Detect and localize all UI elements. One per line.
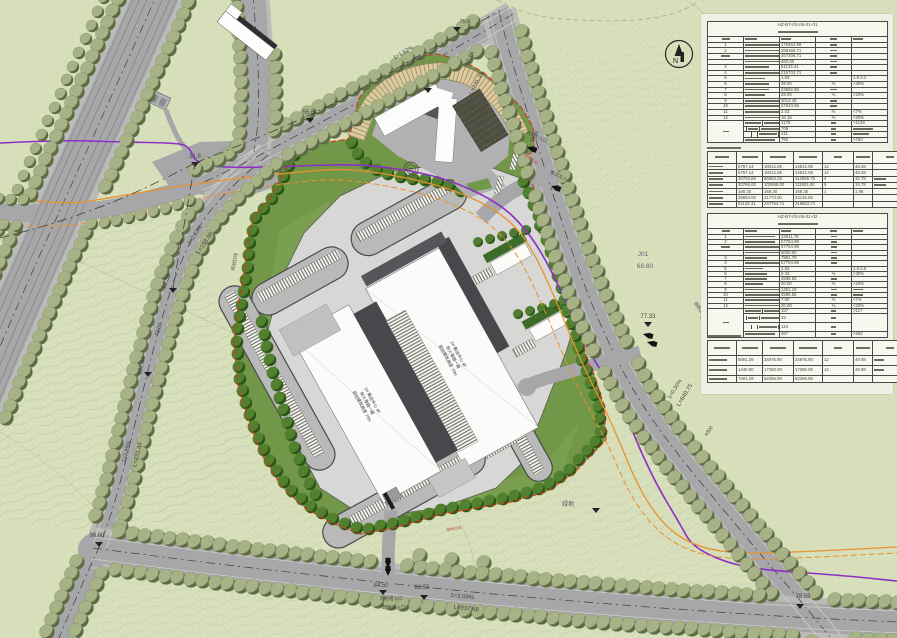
svg-text:绿地: 绿地: [562, 500, 574, 508]
svg-text:J01: J01: [638, 251, 649, 258]
svg-text:84.50: 84.50: [373, 583, 389, 589]
svg-text:消防组入口: 消防组入口: [380, 595, 403, 602]
svg-text:31.8: 31.8: [189, 154, 201, 160]
svg-text:96.00: 96.00: [89, 533, 105, 539]
svg-text:75.9: 75.9: [460, 19, 471, 25]
svg-text:55.61: 55.61: [302, 110, 318, 116]
svg-text:78.59: 78.59: [795, 594, 811, 600]
svg-text:疏散次入口: 疏散次入口: [383, 604, 406, 611]
svg-text:N: N: [673, 58, 678, 65]
svg-text:77.33: 77.33: [640, 314, 656, 320]
svg-text:68.60: 68.60: [637, 263, 654, 270]
svg-text:82.55: 82.55: [414, 585, 430, 591]
svg-text:02: 02: [408, 167, 414, 172]
